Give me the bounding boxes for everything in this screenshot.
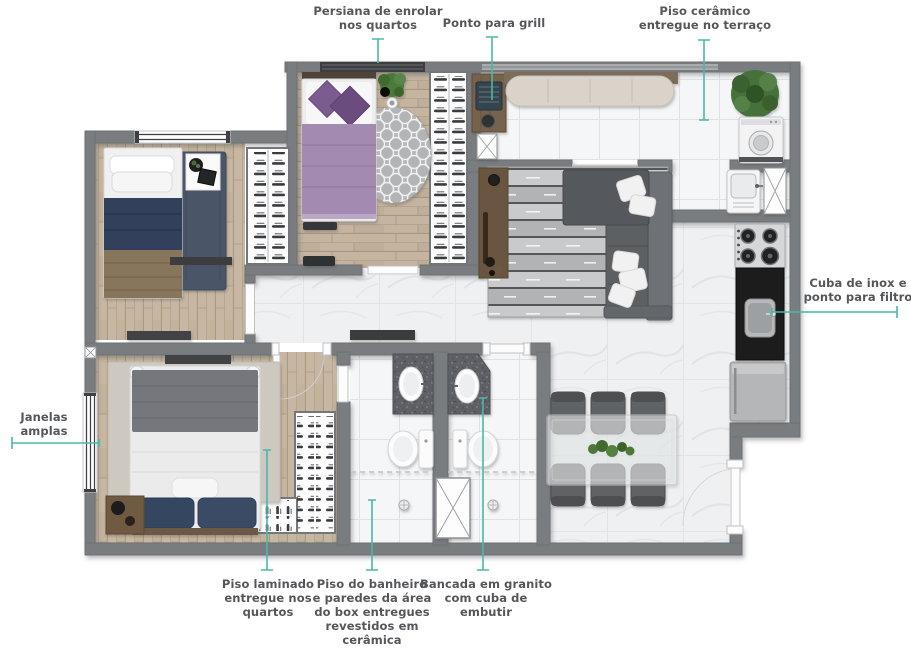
bench-tray: [303, 256, 335, 266]
callout-line: e paredes da área: [313, 591, 432, 605]
prep-sink: [482, 115, 495, 128]
callout-janelas: Janelas amplas: [20, 410, 67, 438]
callout-bancada: Bancada em granito com cuba de embutir: [420, 577, 552, 619]
entry-door: [731, 468, 740, 526]
grill-counter: [472, 74, 506, 132]
callout-line: nos quartos: [313, 18, 442, 32]
gray-blanket: [132, 370, 258, 432]
entry-doorframe: [727, 526, 743, 534]
callout-line: do box entregues: [313, 605, 432, 619]
callout-piso-ceramico: Piso cerâmico entregue no terraço: [639, 4, 771, 32]
terrace-floor-pocket: [672, 160, 730, 210]
potted-plant: [378, 73, 406, 97]
floor-plan: [0, 0, 911, 650]
callout-line: Piso laminado: [222, 577, 314, 591]
entry-doorframe: [727, 460, 743, 468]
callout-line: Janelas: [20, 410, 67, 424]
callout-line: embutir: [420, 605, 552, 619]
callout-line: cerâmica: [313, 633, 432, 647]
callout-piso-laminado: Piso laminado entregue nos quartos: [222, 577, 314, 619]
callout-piso-banheiro: Piso do banheiro e paredes da área do bo…: [313, 577, 432, 647]
callout-line: Bancada em granito: [420, 577, 552, 591]
column-marker: [85, 347, 96, 358]
foot-bench: [303, 222, 337, 230]
laundry-sink: [727, 170, 763, 213]
lavender-blanket: [302, 124, 376, 218]
bedroom-1-closet: [430, 72, 467, 264]
bedroom-1-door: [368, 266, 418, 274]
bedroom-2-door: [246, 284, 255, 334]
callout-line: ponto para filtro: [804, 290, 911, 304]
terrace-shaft: [477, 134, 497, 159]
pillow: [110, 156, 174, 174]
soundbar: [483, 212, 488, 264]
headboard: [132, 528, 258, 535]
callout-line: entregue nos: [222, 591, 314, 605]
washing-machine: [739, 117, 783, 163]
callout-persiana: Persiana de enrolar nos quartos: [313, 4, 442, 32]
single-bed-purple: [302, 72, 376, 221]
grill: [476, 82, 502, 110]
service-shaft: [436, 478, 470, 538]
bedroom-1-roller-blind-window: [320, 62, 425, 72]
bathroom-2-door: [490, 344, 524, 353]
sofa-armrest: [604, 306, 672, 318]
side-table: [106, 496, 144, 534]
breakfast-tray: [186, 154, 220, 190]
laundry-shaft: [764, 168, 786, 214]
navy-blanket: [104, 198, 182, 250]
sofa-back: [646, 172, 672, 320]
tv-console: [170, 257, 232, 265]
bedroom-2-window: [135, 131, 230, 143]
large-plant: [731, 70, 779, 118]
doorframe: [323, 343, 331, 355]
callout-line: Piso cerâmico: [639, 4, 771, 18]
callout-line: com cuba de: [420, 591, 552, 605]
navy-pillow: [136, 498, 194, 528]
callout-line: Cuba de inox e: [804, 276, 911, 290]
dresser: [127, 331, 191, 340]
navy-pillow: [198, 498, 256, 528]
kitchen: [730, 224, 786, 421]
toilet: [388, 430, 433, 468]
headboard: [302, 72, 376, 79]
leader-persiana: [372, 39, 384, 63]
callout-line: Ponto para grill: [443, 16, 546, 30]
callout-line: revestidos em: [313, 619, 432, 633]
doorframe: [483, 343, 490, 355]
callout-ponto-grill: Ponto para grill: [443, 16, 546, 30]
double-bed: [130, 366, 260, 535]
single-bed: [104, 148, 182, 298]
doorframe: [272, 343, 279, 355]
living-room: [479, 167, 672, 320]
pillow: [172, 478, 218, 498]
tv-dresser: [165, 355, 231, 364]
callout-line: Piso do banheiro: [313, 577, 432, 591]
shower-drain: [488, 500, 498, 510]
bench: [504, 72, 678, 106]
black-granite-counter: [736, 268, 784, 360]
callout-cuba-inox: Cuba de inox e ponto para filtro: [804, 276, 911, 304]
toilet: [453, 430, 498, 468]
door-mat: [350, 330, 415, 340]
fridge-handle: [734, 368, 737, 414]
callout-line: amplas: [20, 424, 67, 438]
floor-plan-canvas: Persiana de enrolar nos quartos Ponto pa…: [0, 0, 911, 650]
callout-line: Persiana de enrolar: [313, 4, 442, 18]
callout-line: entregue no terraço: [639, 18, 771, 32]
faucet: [755, 184, 759, 188]
refrigerator: [730, 362, 786, 421]
dining-area: [547, 392, 677, 506]
callout-line: quartos: [222, 605, 314, 619]
tv-console: [479, 168, 508, 278]
shower-drain: [399, 500, 409, 510]
cooktop: [735, 224, 785, 268]
ensuite-door: [338, 366, 348, 402]
bedroom-2-closet: [247, 148, 289, 264]
pillow: [112, 172, 172, 192]
